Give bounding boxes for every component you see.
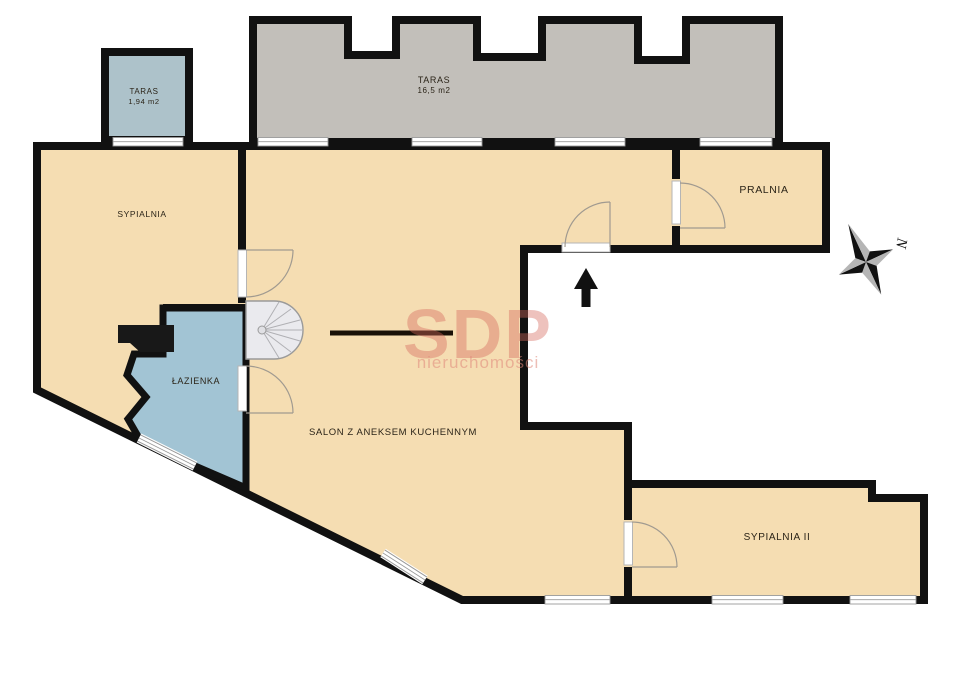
watermark: SDP nieruchomości xyxy=(403,295,553,373)
label-taras-small-area: 1,94 m2 xyxy=(128,97,159,106)
window-sypialnia2-bottom-2 xyxy=(850,596,916,605)
compass-north-label: N xyxy=(892,236,910,251)
threshold-sypialnia2-door xyxy=(624,522,633,565)
label-lazienka: ŁAZIENKA xyxy=(172,376,220,386)
window-salon-bottom xyxy=(545,596,610,605)
label-taras-big-area: 16,5 m2 xyxy=(417,86,450,95)
label-taras-small: TARAS xyxy=(129,87,158,96)
terrace-big-shape xyxy=(253,20,779,142)
floor-plan-svg: SDP nieruchomości TARAS 1,94 m2 TARAS 16… xyxy=(0,0,960,679)
compass-rose: N xyxy=(821,211,910,307)
threshold-bathroom-door xyxy=(238,366,247,411)
label-sypialnia: SYPIALNIA xyxy=(117,209,166,219)
window-pralnia-top xyxy=(700,138,772,147)
threshold-sypialnia-door xyxy=(238,250,247,297)
label-pralnia: PRALNIA xyxy=(739,184,788,196)
window-salon-top-1 xyxy=(258,138,328,147)
threshold-pralnia-door xyxy=(672,181,681,224)
label-sypialnia2: SYPIALNIA II xyxy=(744,532,811,543)
window-salon-top-3 xyxy=(555,138,625,147)
entrance-arrow-icon xyxy=(574,268,598,307)
terrace-small-shape xyxy=(105,52,189,140)
spiral-stairs xyxy=(246,301,303,359)
window-salon-top-2 xyxy=(412,138,482,147)
window-sypialnia2-bottom-1 xyxy=(712,596,783,605)
threshold-entrance-door xyxy=(562,243,610,252)
floor-plan-page: SDP nieruchomości TARAS 1,94 m2 TARAS 16… xyxy=(0,0,960,679)
label-salon: SALON Z ANEKSEM KUCHENNYM xyxy=(309,427,477,438)
window-terrace-small xyxy=(113,138,183,147)
label-taras-big: TARAS xyxy=(418,75,450,85)
watermark-tagline: nieruchomości xyxy=(417,353,540,372)
